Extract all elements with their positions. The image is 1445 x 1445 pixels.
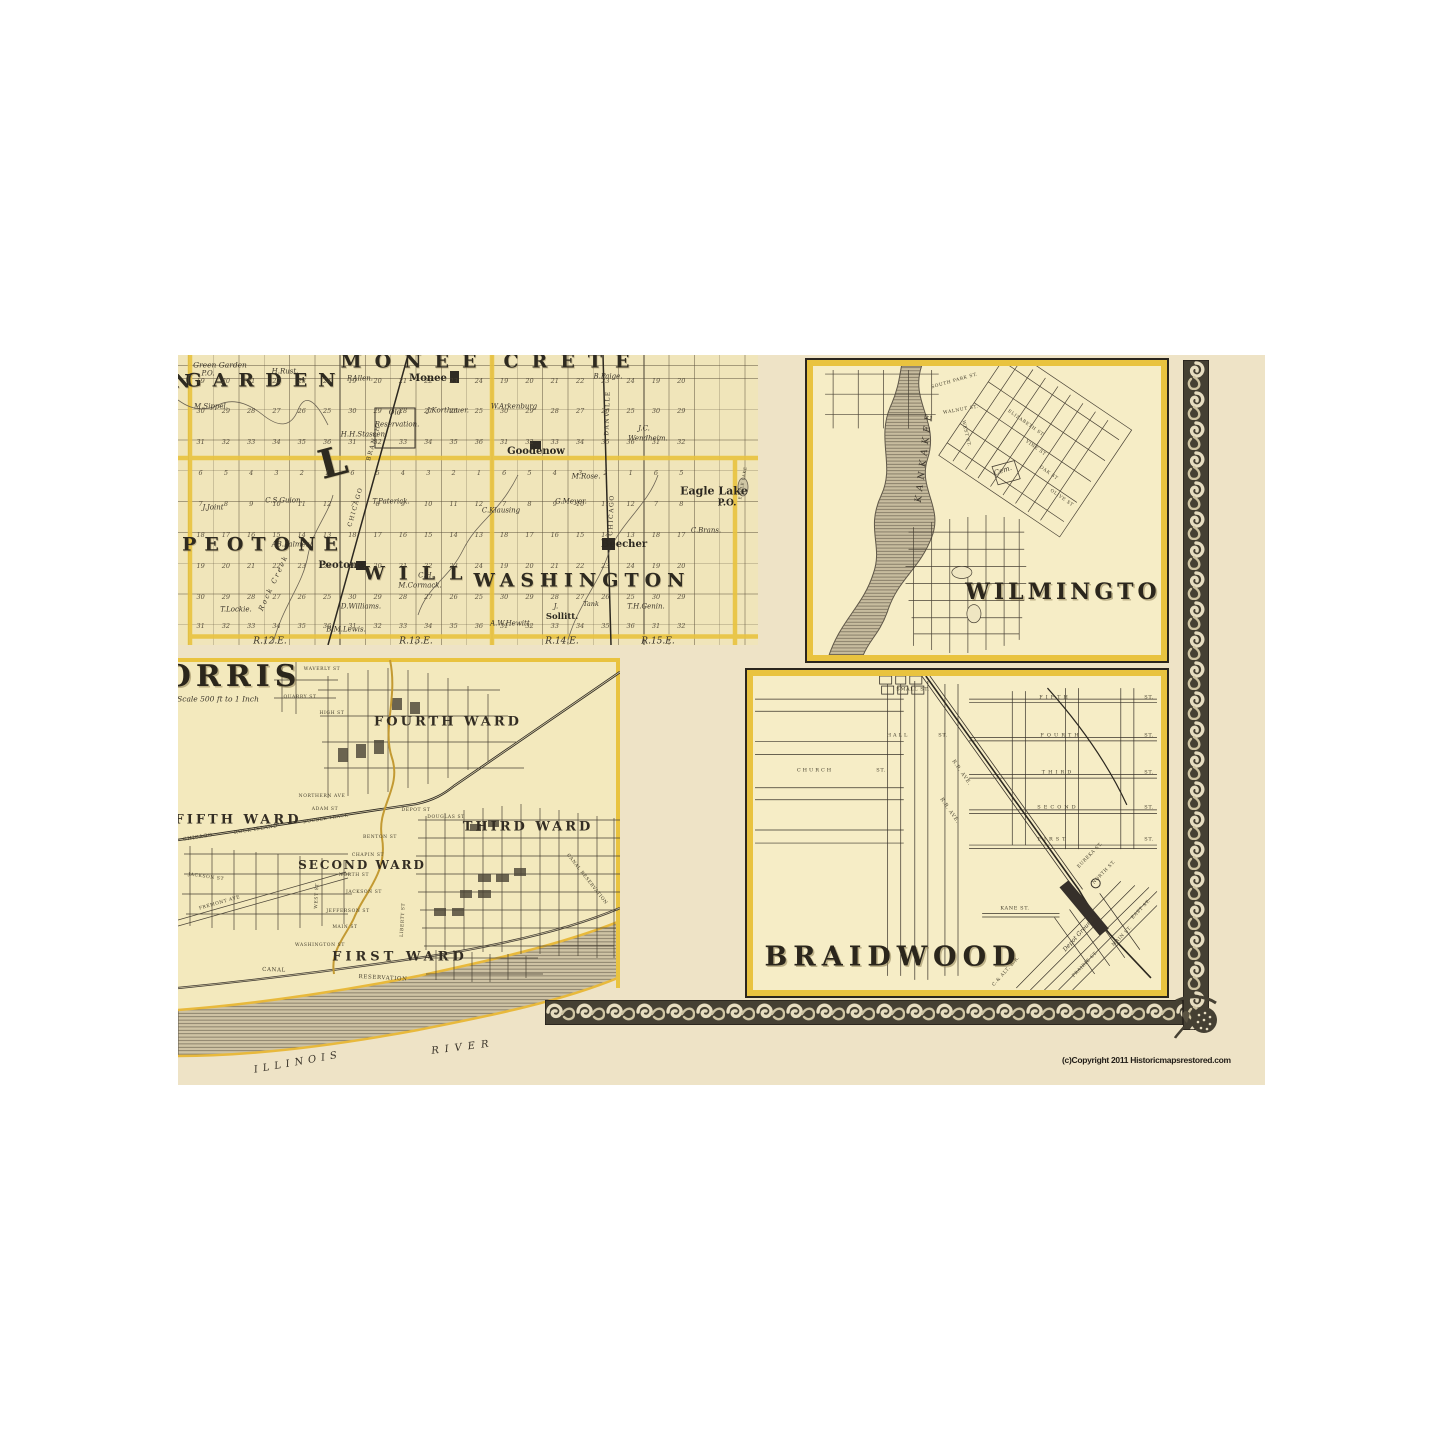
map-label: Sollitt. <box>546 613 578 622</box>
section-number: 28 <box>399 408 407 415</box>
section-number: 18 <box>652 532 660 539</box>
section-number: 8 <box>376 501 380 508</box>
section-number: 29 <box>222 594 230 601</box>
map-label: DEPOT ST <box>402 809 431 814</box>
section-number: 19 <box>500 378 508 385</box>
map-label: PRAIRIE ST. <box>1072 951 1099 979</box>
map-label: WILMINGTON <box>965 581 1161 603</box>
section-number: 27 <box>576 408 584 415</box>
section-number: 17 <box>222 532 230 539</box>
section-number: 22 <box>272 378 280 385</box>
map-label: QUARRY ST <box>283 696 316 701</box>
section-number: 19 <box>652 563 660 570</box>
map-label: C.Brans. <box>691 528 721 535</box>
decorative-scroll-border-right <box>1183 360 1209 1030</box>
map-label: BENTON ST <box>363 836 397 841</box>
section-number: 1 <box>477 470 481 477</box>
section-number: 29 <box>677 408 685 415</box>
map-label: ILLINOIS <box>253 1050 342 1075</box>
section-number: 26 <box>601 594 609 601</box>
section-number: 10 <box>272 501 280 508</box>
section-number: 3 <box>578 470 582 477</box>
map-label: SECOND <box>1037 806 1078 811</box>
section-number: 4 <box>249 470 253 477</box>
section-number: 20 <box>222 563 230 570</box>
map-label: R.14.E. <box>545 638 578 647</box>
section-number: 6 <box>502 470 506 477</box>
section-number: 33 <box>399 439 407 446</box>
morris-labels-layer: MORRISScale 500 ft to 1 InchFOURTH WARDF… <box>178 658 620 1083</box>
map-label: M.Cormack. <box>398 583 442 590</box>
section-number: 2 <box>452 470 456 477</box>
map-label: WASHINGTON ST <box>295 944 345 949</box>
section-number: 31 <box>348 623 356 630</box>
section-number: 30 <box>196 408 204 415</box>
wilmington-paper: KANKAKEECem.SOUTH PARK ST.WALNUT ST.WEST… <box>813 366 1161 655</box>
map-label: WAVERLY ST <box>304 668 341 673</box>
map-label: Tank <box>583 601 599 608</box>
section-number: 8 <box>527 501 531 508</box>
section-number: 28 <box>551 408 559 415</box>
map-label: D.Williams. <box>341 604 381 611</box>
section-number: 27 <box>424 408 432 415</box>
section-number: 6 <box>199 470 203 477</box>
section-number: 34 <box>576 439 584 446</box>
section-number: 35 <box>449 439 457 446</box>
section-number: 11 <box>601 501 609 508</box>
section-number: 33 <box>551 623 559 630</box>
section-number: 6 <box>350 470 354 477</box>
section-number: 16 <box>551 532 559 539</box>
section-number: 13 <box>475 532 483 539</box>
map-label: FIRST WARD <box>332 951 468 964</box>
section-number: 24 <box>323 378 331 385</box>
section-number: 14 <box>298 532 306 539</box>
section-number: 24 <box>323 563 331 570</box>
section-number: 16 <box>399 532 407 539</box>
section-number: 30 <box>500 594 508 601</box>
section-number: 21 <box>399 378 407 385</box>
section-number: 12 <box>323 501 331 508</box>
section-number: 29 <box>222 408 230 415</box>
map-label: HIGH ST <box>320 712 345 717</box>
section-number: 23 <box>449 378 457 385</box>
map-label: ST. <box>1144 734 1153 739</box>
section-number: 20 <box>677 378 685 385</box>
section-number: 31 <box>196 439 204 446</box>
section-number: 34 <box>424 623 432 630</box>
map-label: Scale 500 ft to 1 Inch <box>178 695 259 703</box>
section-number: 36 <box>627 439 635 446</box>
map-label: FIRST <box>1038 838 1069 843</box>
map-label: AB.Palmer. <box>272 542 311 549</box>
section-number: 36 <box>323 623 331 630</box>
section-number: 25 <box>323 594 331 601</box>
map-label: NORTH ST. <box>1092 860 1117 886</box>
section-number: 23 <box>298 563 306 570</box>
section-number: 32 <box>525 623 533 630</box>
section-number: 19 <box>348 378 356 385</box>
section-number: 17 <box>525 532 533 539</box>
section-number: 32 <box>677 623 685 630</box>
section-number: 32 <box>222 623 230 630</box>
section-number: 32 <box>222 439 230 446</box>
map-label: KANKAKEE <box>915 409 935 503</box>
section-number: 20 <box>525 563 533 570</box>
section-number: 35 <box>601 623 609 630</box>
section-number: 5 <box>376 470 380 477</box>
section-number: 34 <box>576 623 584 630</box>
section-number: 30 <box>348 408 356 415</box>
map-label: B.M.Lewis. <box>326 627 366 634</box>
map-label: ST. <box>938 734 947 739</box>
map-label: ST. <box>876 769 885 774</box>
map-label: JACKSON ST <box>188 873 224 882</box>
section-number: 34 <box>424 439 432 446</box>
map-label: WALNUT ST. <box>943 406 979 417</box>
section-number: 24 <box>475 563 483 570</box>
section-number: 33 <box>399 623 407 630</box>
section-number: 21 <box>247 378 255 385</box>
map-label: ST. <box>1144 771 1153 776</box>
map-label: H.Rust. <box>272 369 299 376</box>
map-label: THIRD WARD <box>463 821 594 834</box>
section-number: 10 <box>424 501 432 508</box>
section-number: 3 <box>274 470 278 477</box>
wilmington-labels-layer: KANKAKEECem.SOUTH PARK ST.WALNUT ST.WEST… <box>813 366 1161 655</box>
section-number: 4 <box>401 470 405 477</box>
section-number: 26 <box>601 408 609 415</box>
map-label: NORTHERN AVE <box>299 795 346 800</box>
map-label: CANAL RESERVATION <box>565 854 607 907</box>
map-label: T.H.Genin. <box>627 604 664 611</box>
section-number: 31 <box>652 439 660 446</box>
braidwood-paper: SMALL ST.FIFTHST.FOURTHST.THIRDST.SECOND… <box>753 676 1161 990</box>
section-number: 20 <box>374 378 382 385</box>
map-label: RIVER <box>431 1039 495 1057</box>
map-label: Goodenow <box>507 447 565 457</box>
section-number: 24 <box>627 563 635 570</box>
map-label: WEST ST. <box>960 420 970 447</box>
section-number: 26 <box>298 408 306 415</box>
section-number: 9 <box>401 501 405 508</box>
map-label: ST. <box>1144 806 1153 811</box>
section-number: 29 <box>374 408 382 415</box>
section-number: 32 <box>374 439 382 446</box>
map-label: MAIN ST. <box>1112 926 1134 948</box>
section-number: 35 <box>449 623 457 630</box>
map-label: J.Joint <box>202 505 223 512</box>
section-number: 36 <box>475 439 483 446</box>
section-number: 29 <box>525 594 533 601</box>
section-number: 10 <box>576 501 584 508</box>
section-number: 35 <box>298 623 306 630</box>
map-label: M.Rose. <box>572 474 601 481</box>
map-label: J. <box>554 604 559 611</box>
section-number: 25 <box>323 408 331 415</box>
section-number: 29 <box>374 594 382 601</box>
section-number: 19 <box>500 563 508 570</box>
section-number: 30 <box>500 408 508 415</box>
section-number: 12 <box>475 501 483 508</box>
map-label: N <box>178 373 191 392</box>
section-number: 18 <box>196 532 204 539</box>
map-label: R.13.E. <box>399 638 432 647</box>
section-number: 5 <box>224 470 228 477</box>
section-number: 25 <box>627 594 635 601</box>
section-number: 36 <box>323 439 331 446</box>
map-label: OLIVE ST <box>1049 489 1074 508</box>
section-number: 4 <box>553 470 557 477</box>
map-label: BRAIDWOOD <box>764 944 1021 971</box>
map-label: T.Lockie. <box>220 607 252 614</box>
section-number: 32 <box>525 439 533 446</box>
section-number: 19 <box>196 563 204 570</box>
map-label: R.R. AVE. <box>938 797 959 824</box>
section-number: 24 <box>475 378 483 385</box>
section-number: 13 <box>627 532 635 539</box>
map-label: SOUTH PARK ST. <box>931 373 979 391</box>
section-number: 30 <box>348 594 356 601</box>
section-number: 23 <box>601 378 609 385</box>
section-number: 30 <box>196 594 204 601</box>
section-number: 27 <box>424 594 432 601</box>
map-label: MORRIS <box>178 662 301 692</box>
map-label: ADAM ST <box>312 808 338 813</box>
section-number: 7 <box>654 501 658 508</box>
map-label: ELIZABETH ST <box>1006 410 1044 438</box>
map-label: R.12.E. <box>253 638 286 647</box>
section-number: 18 <box>348 532 356 539</box>
section-number: 24 <box>627 378 635 385</box>
section-number: 20 <box>374 563 382 570</box>
copyright-label: (c)Copyright 2011 Historicmapsrestored.c… <box>1062 1055 1231 1065</box>
section-number: 31 <box>348 439 356 446</box>
map-label: CHURCH <box>797 769 833 774</box>
map-label: WEST ST <box>315 883 321 909</box>
map-label: MONEE <box>341 355 490 372</box>
section-number: 34 <box>272 623 280 630</box>
section-number: 20 <box>525 378 533 385</box>
map-label: SMALL ST. <box>896 688 929 693</box>
section-number: 32 <box>677 439 685 446</box>
section-number: 14 <box>449 532 457 539</box>
map-label: J.Korthauer. <box>427 408 469 415</box>
map-label: Depot Grounds <box>1062 915 1097 953</box>
map-label: JEFFERSON ST <box>326 910 369 915</box>
section-number: 22 <box>424 563 432 570</box>
map-label: J.C. <box>638 426 650 433</box>
map-label: ST. <box>1144 838 1153 843</box>
section-number: 8 <box>679 501 683 508</box>
section-number: 20 <box>222 378 230 385</box>
section-number: 11 <box>449 501 457 508</box>
section-number: 15 <box>424 532 432 539</box>
section-number: 17 <box>677 532 685 539</box>
map-label: FOURTH WARD <box>374 716 522 729</box>
section-number: 6 <box>654 470 658 477</box>
section-number: 33 <box>247 623 255 630</box>
section-number: 31 <box>652 623 660 630</box>
map-label: EAST ST. <box>1131 899 1152 921</box>
section-number: 17 <box>374 532 382 539</box>
section-number: 36 <box>627 623 635 630</box>
section-number: 7 <box>350 501 354 508</box>
section-number: 16 <box>247 532 255 539</box>
atlas-page: GARDENNMONEECRETEPEOTONEWILLWASHINGTONLM… <box>0 0 1445 1445</box>
section-number: 27 <box>272 408 280 415</box>
map-label: EUREKA ST. <box>1077 842 1104 870</box>
section-number: 12 <box>627 501 635 508</box>
map-label: RESERVATION <box>358 975 407 983</box>
section-number: 28 <box>247 408 255 415</box>
section-number: 19 <box>348 563 356 570</box>
corner-ornament-icon <box>1174 993 1222 1041</box>
section-number: 15 <box>576 532 584 539</box>
section-number: 27 <box>576 594 584 601</box>
section-number: 1 <box>629 470 633 477</box>
section-number: 27 <box>272 594 280 601</box>
map-label: FIFTH <box>1039 696 1071 701</box>
section-number: 25 <box>475 594 483 601</box>
section-number: 33 <box>551 439 559 446</box>
section-number: 23 <box>298 378 306 385</box>
map-label: L <box>314 440 352 486</box>
map-label: R.R. AVE. <box>950 759 971 786</box>
section-number: 35 <box>601 439 609 446</box>
map-label: CANAL <box>262 968 286 974</box>
section-number: 11 <box>298 501 306 508</box>
wilmington-inset: KANKAKEECem.SOUTH PARK ST.WALNUT ST.WEST… <box>805 358 1169 663</box>
section-number: 18 <box>500 532 508 539</box>
map-label: WASHINGTON <box>473 572 690 591</box>
map-label: C.Klausing <box>482 508 520 515</box>
section-number: 22 <box>272 563 280 570</box>
section-number: 36 <box>475 623 483 630</box>
section-number: 25 <box>475 408 483 415</box>
section-number: 31 <box>500 623 508 630</box>
section-number: 26 <box>298 594 306 601</box>
section-number: 23 <box>449 563 457 570</box>
section-number: 15 <box>272 532 280 539</box>
township-labels-layer: GARDENNMONEECRETEPEOTONEWILLWASHINGTONLM… <box>178 355 758 645</box>
section-number: 35 <box>298 439 306 446</box>
section-number: 21 <box>247 563 255 570</box>
section-number: 28 <box>247 594 255 601</box>
section-number: 2 <box>300 470 304 477</box>
map-label: SECOND WARD <box>298 859 426 871</box>
section-number: 9 <box>553 501 557 508</box>
section-number: 7 <box>199 501 203 508</box>
map-label: FOURTH <box>1040 734 1081 739</box>
section-number: 32 <box>374 623 382 630</box>
section-number: 31 <box>500 439 508 446</box>
section-number: 5 <box>527 470 531 477</box>
map-label: Beecher <box>601 540 647 550</box>
braidwood-inset: SMALL ST.FIFTHST.FOURTHST.THIRDST.SECOND… <box>745 668 1169 998</box>
map-label: KANE ST. <box>1000 907 1029 912</box>
section-number: 30 <box>652 594 660 601</box>
section-number: 26 <box>449 408 457 415</box>
section-number: 25 <box>627 408 635 415</box>
map-label: DOUBLE TRACK <box>303 814 349 826</box>
section-number: 21 <box>399 563 407 570</box>
section-number: 23 <box>601 563 609 570</box>
section-number: 1 <box>325 470 329 477</box>
map-label: CRETE <box>503 355 642 372</box>
map-label: JACKSON ST <box>346 891 382 896</box>
map-label: ST. <box>1144 696 1153 701</box>
map-label: C.H. <box>418 573 434 580</box>
map-label: Green Garden <box>193 361 247 369</box>
section-number: 5 <box>679 470 683 477</box>
section-number: 30 <box>652 408 660 415</box>
map-label: PEOTONE <box>182 536 346 555</box>
map-label: P.O. <box>718 500 737 509</box>
section-number: 2 <box>603 470 607 477</box>
section-number: 20 <box>677 563 685 570</box>
map-label: NORTH ST <box>339 874 369 879</box>
section-number: 26 <box>449 594 457 601</box>
braidwood-labels-layer: SMALL ST.FIFTHST.FOURTHST.THIRDST.SECOND… <box>753 676 1161 990</box>
section-number: 28 <box>551 594 559 601</box>
map-label: HALL <box>887 734 910 739</box>
map-label: MAIN ST <box>332 926 357 931</box>
section-number: 3 <box>426 470 430 477</box>
map-label: Cem. <box>993 465 1013 477</box>
section-number: 22 <box>576 378 584 385</box>
section-number: 28 <box>399 594 407 601</box>
section-number: 14 <box>601 532 609 539</box>
section-number: 29 <box>525 408 533 415</box>
decorative-scroll-border-bottom <box>545 1000 1183 1025</box>
map-label: CHICAGO <box>183 833 213 843</box>
map-label: OAK ST <box>1038 466 1058 482</box>
map-label: CHAPIN ST <box>352 854 384 859</box>
section-number: 22 <box>576 563 584 570</box>
map-label: R.15.E. <box>641 638 674 647</box>
section-number: 19 <box>196 378 204 385</box>
section-number: 22 <box>424 378 432 385</box>
township-plat-map: GARDENNMONEECRETEPEOTONEWILLWASHINGTONLM… <box>178 355 758 645</box>
map-label: FIFTH WARD <box>178 814 301 827</box>
map-label: LIBERTY ST <box>401 903 407 937</box>
section-number: 34 <box>272 439 280 446</box>
section-number: 33 <box>247 439 255 446</box>
section-number: 31 <box>196 623 204 630</box>
section-number: 29 <box>677 594 685 601</box>
map-scan-area: GARDENNMONEECRETEPEOTONEWILLWASHINGTONLM… <box>178 355 1265 1085</box>
section-number: 7 <box>502 501 506 508</box>
section-number: 21 <box>551 563 559 570</box>
map-label: DOUGLAS ST <box>427 816 465 821</box>
section-number: 19 <box>652 378 660 385</box>
section-number: 21 <box>551 378 559 385</box>
map-label: THIRD <box>1042 771 1074 776</box>
map-label: VINE ST <box>1024 440 1046 457</box>
section-number: 8 <box>224 501 228 508</box>
morris-city-map: MORRISScale 500 ft to 1 InchFOURTH WARDF… <box>178 658 620 1083</box>
section-number: 13 <box>323 532 331 539</box>
section-number: 9 <box>249 501 253 508</box>
map-label: FREMONT AVE <box>199 896 241 912</box>
